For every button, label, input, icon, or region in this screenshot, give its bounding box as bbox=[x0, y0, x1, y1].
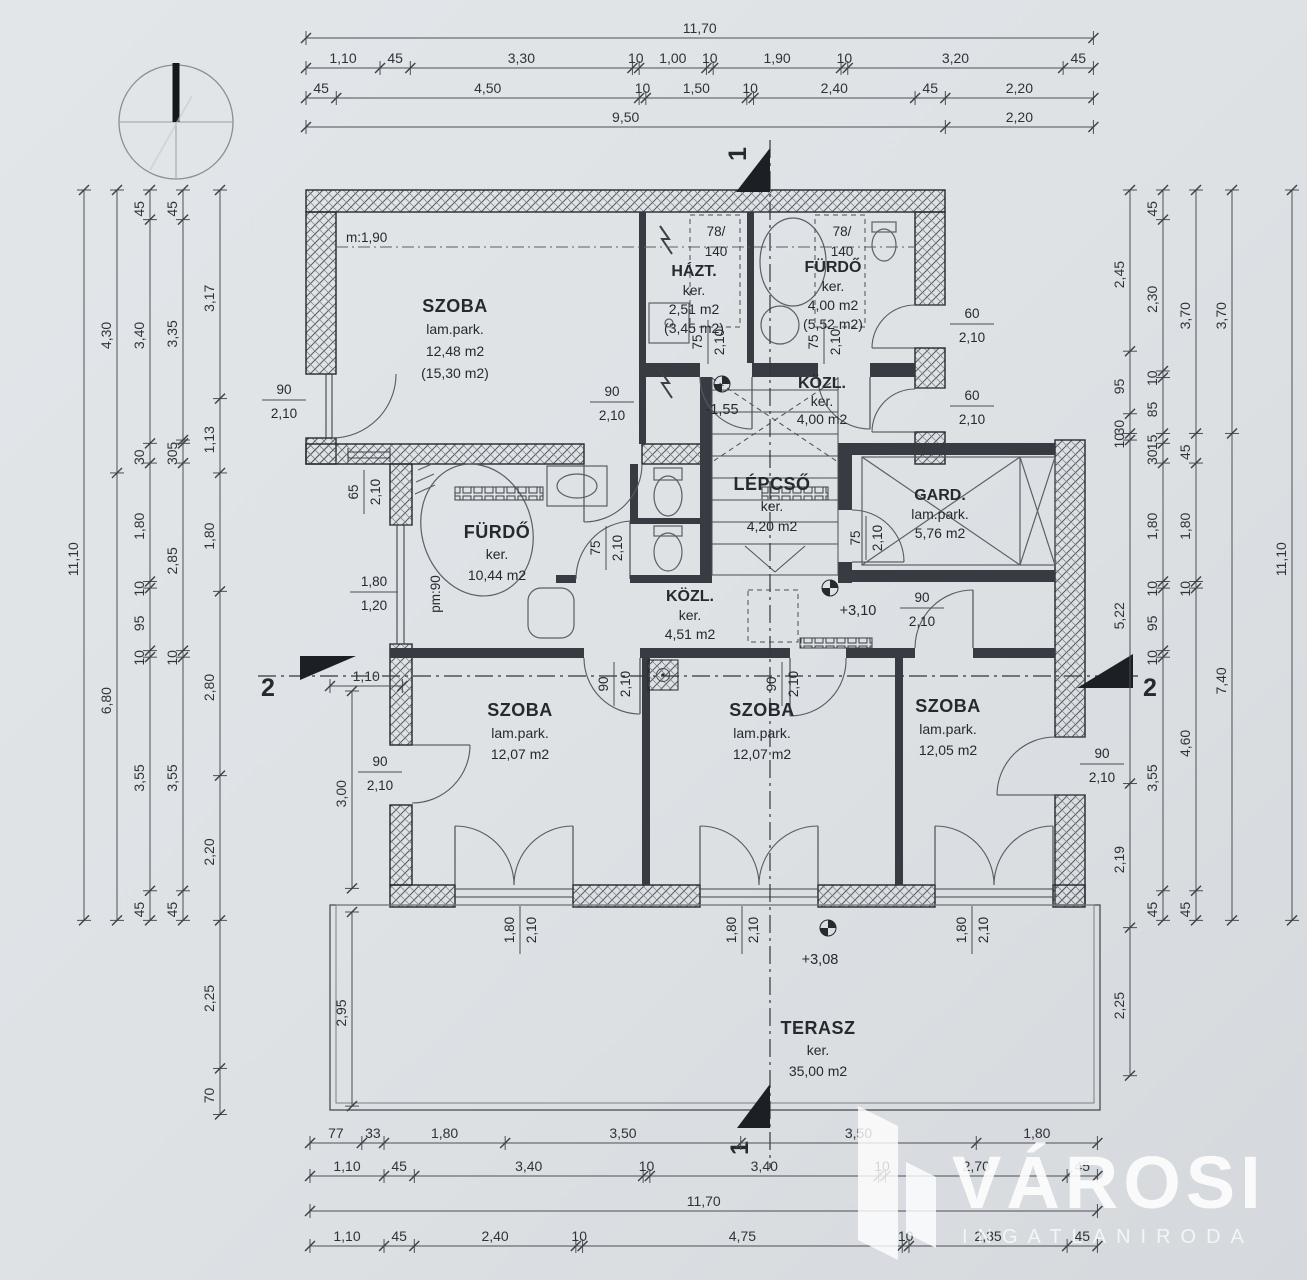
svg-text:60: 60 bbox=[964, 306, 979, 321]
svg-text:45: 45 bbox=[1177, 902, 1193, 918]
room-name: SZOBA bbox=[422, 296, 488, 316]
svg-text:1,10: 1,10 bbox=[333, 1158, 360, 1174]
svg-text:90: 90 bbox=[276, 382, 291, 397]
svg-text:90: 90 bbox=[372, 754, 387, 769]
svg-text:1,10: 1,10 bbox=[333, 1228, 360, 1244]
room-floor: ker. bbox=[807, 1042, 830, 1058]
svg-text:1,80: 1,80 bbox=[201, 522, 217, 549]
brand-logo-icon bbox=[858, 1106, 898, 1260]
svg-text:2,10: 2,10 bbox=[909, 614, 935, 629]
svg-text:3,55: 3,55 bbox=[1144, 764, 1160, 791]
svg-text:3,55: 3,55 bbox=[131, 764, 147, 791]
svg-text:1,80: 1,80 bbox=[724, 917, 739, 943]
svg-text:95: 95 bbox=[1144, 615, 1160, 631]
svg-text:2,10: 2,10 bbox=[367, 778, 393, 793]
room-name: TERASZ bbox=[781, 1018, 856, 1038]
svg-text:45: 45 bbox=[922, 80, 938, 96]
room-area: 12,05 m2 bbox=[919, 742, 978, 758]
svg-text:3,70: 3,70 bbox=[1177, 302, 1193, 329]
svg-text:60: 60 bbox=[964, 388, 979, 403]
level-value-terrace: +3,08 bbox=[802, 952, 839, 968]
svg-text:78/: 78/ bbox=[707, 224, 726, 239]
svg-text:2,20: 2,20 bbox=[201, 838, 217, 865]
svg-text:3,40: 3,40 bbox=[751, 1158, 778, 1174]
svg-text:2,95: 2,95 bbox=[333, 999, 349, 1026]
svg-text:4,75: 4,75 bbox=[729, 1228, 756, 1244]
svg-text:90: 90 bbox=[596, 676, 611, 691]
room-area: 4,00 m2 bbox=[808, 297, 859, 313]
room-name: KÖZL. bbox=[798, 373, 846, 392]
room-area: 12,07 m2 bbox=[733, 746, 792, 762]
svg-text:1,80: 1,80 bbox=[361, 574, 387, 589]
svg-text:85: 85 bbox=[1144, 401, 1160, 417]
room-note: pm:90 bbox=[428, 575, 443, 613]
svg-text:2,10: 2,10 bbox=[959, 412, 985, 427]
svg-text:11,10: 11,10 bbox=[65, 542, 81, 576]
svg-text:2,10: 2,10 bbox=[524, 917, 539, 943]
svg-text:2,10: 2,10 bbox=[870, 525, 885, 551]
watermark-brand: VÁROSI bbox=[952, 1141, 1266, 1224]
svg-text:2,10: 2,10 bbox=[610, 535, 625, 561]
svg-text:1,10: 1,10 bbox=[353, 668, 380, 684]
svg-text:65: 65 bbox=[346, 484, 361, 499]
svg-text:95: 95 bbox=[1111, 378, 1127, 394]
svg-text:2,80: 2,80 bbox=[201, 674, 217, 701]
room-name: KÖZL. bbox=[666, 586, 714, 605]
svg-text:2,30: 2,30 bbox=[1144, 285, 1160, 312]
svg-text:45: 45 bbox=[164, 902, 180, 918]
svg-text:3,40: 3,40 bbox=[131, 322, 147, 349]
svg-text:75: 75 bbox=[690, 334, 705, 349]
svg-text:140: 140 bbox=[705, 244, 728, 259]
room-label-gard: GARD. lam.park. 5,76 m2 bbox=[911, 487, 969, 541]
svg-text:90: 90 bbox=[914, 590, 929, 605]
svg-text:10: 10 bbox=[628, 50, 644, 66]
svg-text:1,80: 1,80 bbox=[1177, 512, 1193, 539]
svg-text:45: 45 bbox=[164, 201, 180, 217]
svg-text:1,80: 1,80 bbox=[502, 917, 517, 943]
svg-text:10: 10 bbox=[702, 50, 718, 66]
room-area: 10,44 m2 bbox=[468, 567, 527, 583]
svg-text:140: 140 bbox=[831, 244, 854, 259]
svg-text:2,10: 2,10 bbox=[618, 671, 633, 697]
room-name: SZOBA bbox=[729, 700, 795, 720]
svg-text:75: 75 bbox=[848, 530, 863, 545]
svg-text:9,50: 9,50 bbox=[612, 109, 639, 125]
svg-text:95: 95 bbox=[131, 615, 147, 631]
svg-text:2,25: 2,25 bbox=[1111, 992, 1127, 1019]
svg-text:10: 10 bbox=[1144, 650, 1160, 666]
room-floor: lam.park. bbox=[491, 725, 549, 741]
svg-text:1,80: 1,80 bbox=[131, 512, 147, 539]
svg-text:5: 5 bbox=[164, 442, 180, 450]
svg-text:1,10: 1,10 bbox=[329, 50, 356, 66]
room-floor: ker. bbox=[486, 546, 509, 562]
svg-text:1,80: 1,80 bbox=[1023, 1125, 1050, 1141]
svg-text:2,10: 2,10 bbox=[368, 479, 383, 505]
svg-text:3,55: 3,55 bbox=[164, 764, 180, 791]
svg-text:2,10: 2,10 bbox=[599, 408, 625, 423]
room-floor: lam.park. bbox=[426, 321, 484, 337]
svg-text:2,40: 2,40 bbox=[821, 80, 848, 96]
room-floor: lam.park. bbox=[919, 721, 977, 737]
svg-text:45: 45 bbox=[131, 902, 147, 918]
level-value-mid: +3,10 bbox=[840, 603, 877, 619]
svg-text:70: 70 bbox=[201, 1087, 217, 1103]
room-name: FÜRDŐ bbox=[805, 257, 862, 276]
svg-text:90: 90 bbox=[604, 384, 619, 399]
svg-text:33: 33 bbox=[365, 1125, 381, 1141]
svg-text:1,80: 1,80 bbox=[1144, 512, 1160, 539]
svg-text:90: 90 bbox=[764, 676, 779, 691]
room-area: 12,48 m2 bbox=[426, 343, 485, 359]
room-name: LÉPCSŐ bbox=[733, 473, 810, 494]
room-area: 4,51 m2 bbox=[665, 626, 716, 642]
svg-text:10: 10 bbox=[639, 1158, 655, 1174]
svg-text:10: 10 bbox=[131, 650, 147, 666]
svg-text:10: 10 bbox=[571, 1228, 587, 1244]
svg-text:6,80: 6,80 bbox=[98, 687, 114, 714]
svg-text:3,20: 3,20 bbox=[942, 50, 969, 66]
room-name: HÁZT. bbox=[671, 261, 716, 280]
svg-text:3,00: 3,00 bbox=[333, 780, 349, 807]
svg-text:10: 10 bbox=[635, 80, 651, 96]
svg-text:45: 45 bbox=[1144, 902, 1160, 918]
svg-text:1,50: 1,50 bbox=[683, 80, 710, 96]
svg-text:45: 45 bbox=[1144, 201, 1160, 217]
svg-text:3,35: 3,35 bbox=[164, 320, 180, 347]
room-area: 4,00 m2 bbox=[797, 411, 848, 427]
svg-text:11,10: 11,10 bbox=[1273, 542, 1289, 576]
svg-text:3,50: 3,50 bbox=[609, 1125, 636, 1141]
svg-text:3,40: 3,40 bbox=[515, 1158, 542, 1174]
room-floor: ker. bbox=[679, 607, 702, 623]
svg-text:2,10: 2,10 bbox=[828, 329, 843, 355]
svg-text:2,10: 2,10 bbox=[746, 917, 761, 943]
room-label-szoba-3: SZOBA lam.park. 12,07 m2 bbox=[729, 700, 795, 762]
room-floor: ker. bbox=[811, 393, 834, 409]
room-floor: lam.park. bbox=[911, 506, 969, 522]
watermark-subtitle: INGATLANIRODA bbox=[962, 1226, 1254, 1248]
level-value-upper: -1,55 bbox=[705, 402, 738, 418]
room-area: 5,76 m2 bbox=[915, 525, 966, 541]
svg-text:75: 75 bbox=[806, 334, 821, 349]
svg-text:1,00: 1,00 bbox=[659, 50, 686, 66]
svg-text:10: 10 bbox=[1111, 433, 1127, 449]
svg-text:45: 45 bbox=[131, 201, 147, 217]
svg-text:1,90: 1,90 bbox=[763, 50, 790, 66]
svg-text:2,45: 2,45 bbox=[1111, 261, 1127, 288]
svg-text:90: 90 bbox=[1094, 746, 1109, 761]
chimney-symbol bbox=[648, 660, 678, 690]
svg-text:5,22: 5,22 bbox=[1111, 602, 1127, 629]
room-floor: ker. bbox=[683, 282, 706, 298]
svg-text:77: 77 bbox=[328, 1125, 344, 1141]
svg-text:4,60: 4,60 bbox=[1177, 730, 1193, 757]
section-label-1-top: 1 bbox=[724, 147, 752, 161]
room-floor: lam.park. bbox=[733, 725, 791, 741]
svg-text:2,10: 2,10 bbox=[271, 406, 297, 421]
room-area: 35,00 m2 bbox=[789, 1063, 848, 1079]
section-label-2-right: 2 bbox=[1143, 674, 1157, 702]
room-area: 12,07 m2 bbox=[491, 746, 550, 762]
svg-text:10: 10 bbox=[837, 50, 853, 66]
svg-text:1,80: 1,80 bbox=[431, 1125, 458, 1141]
svg-text:3,30: 3,30 bbox=[508, 50, 535, 66]
svg-text:2,10: 2,10 bbox=[976, 917, 991, 943]
svg-text:45: 45 bbox=[1177, 444, 1193, 460]
svg-text:1,80: 1,80 bbox=[954, 917, 969, 943]
floorplan-page: 1 1 2 2 SZOBA lam.park. 12,48 m2 (15,30 … bbox=[0, 0, 1307, 1280]
svg-text:78/: 78/ bbox=[833, 224, 852, 239]
svg-text:2,19: 2,19 bbox=[1111, 846, 1127, 873]
room-name: GARD. bbox=[914, 487, 966, 504]
svg-text:3,70: 3,70 bbox=[1213, 302, 1229, 329]
svg-text:2,10: 2,10 bbox=[1089, 770, 1115, 785]
svg-text:4,50: 4,50 bbox=[474, 80, 501, 96]
room-area: 2,51 m2 bbox=[669, 301, 720, 317]
room-gross-area: (15,30 m2) bbox=[421, 365, 489, 381]
section-label-2-left: 2 bbox=[261, 674, 275, 702]
svg-text:45: 45 bbox=[391, 1158, 407, 1174]
svg-text:1,13: 1,13 bbox=[201, 426, 217, 453]
svg-text:2,25: 2,25 bbox=[201, 985, 217, 1012]
room-label-szoba-2: SZOBA lam.park. 12,07 m2 bbox=[487, 700, 553, 762]
svg-text:7,40: 7,40 bbox=[1213, 667, 1229, 694]
svg-text:45: 45 bbox=[387, 50, 403, 66]
brand-logo-icon bbox=[906, 1162, 936, 1248]
svg-text:75: 75 bbox=[588, 540, 603, 555]
svg-text:11,70: 11,70 bbox=[687, 1193, 721, 1209]
svg-text:3,17: 3,17 bbox=[201, 284, 217, 311]
svg-text:11,70: 11,70 bbox=[683, 20, 717, 36]
svg-text:10: 10 bbox=[1144, 370, 1160, 386]
svg-text:2,10: 2,10 bbox=[786, 671, 801, 697]
room-area: 4,20 m2 bbox=[747, 518, 798, 534]
floor-plan-canvas: 1 1 2 2 SZOBA lam.park. 12,48 m2 (15,30 … bbox=[0, 0, 1307, 1280]
svg-text:10: 10 bbox=[164, 650, 180, 666]
room-label-szoba-4: SZOBA lam.park. 12,05 m2 bbox=[915, 696, 981, 758]
svg-text:2,85: 2,85 bbox=[164, 547, 180, 574]
svg-text:2,20: 2,20 bbox=[1006, 109, 1033, 125]
svg-text:4,30: 4,30 bbox=[98, 322, 114, 349]
room-name: FÜRDŐ bbox=[464, 521, 531, 542]
svg-text:10: 10 bbox=[131, 581, 147, 597]
svg-text:2,40: 2,40 bbox=[481, 1228, 508, 1244]
room-note: m:1,90 bbox=[346, 230, 387, 245]
svg-text:45: 45 bbox=[313, 80, 329, 96]
svg-text:10: 10 bbox=[1144, 581, 1160, 597]
room-name: SZOBA bbox=[915, 696, 981, 716]
svg-text:2,20: 2,20 bbox=[1006, 80, 1033, 96]
svg-text:2,10: 2,10 bbox=[712, 329, 727, 355]
svg-text:10: 10 bbox=[742, 80, 758, 96]
svg-text:2,10: 2,10 bbox=[959, 330, 985, 345]
svg-text:1,20: 1,20 bbox=[361, 598, 387, 613]
room-floor: ker. bbox=[761, 498, 784, 514]
svg-text:45: 45 bbox=[1070, 50, 1086, 66]
svg-text:10: 10 bbox=[1177, 581, 1193, 597]
room-name: SZOBA bbox=[487, 700, 553, 720]
room-floor: ker. bbox=[822, 278, 845, 294]
svg-text:45: 45 bbox=[391, 1228, 407, 1244]
